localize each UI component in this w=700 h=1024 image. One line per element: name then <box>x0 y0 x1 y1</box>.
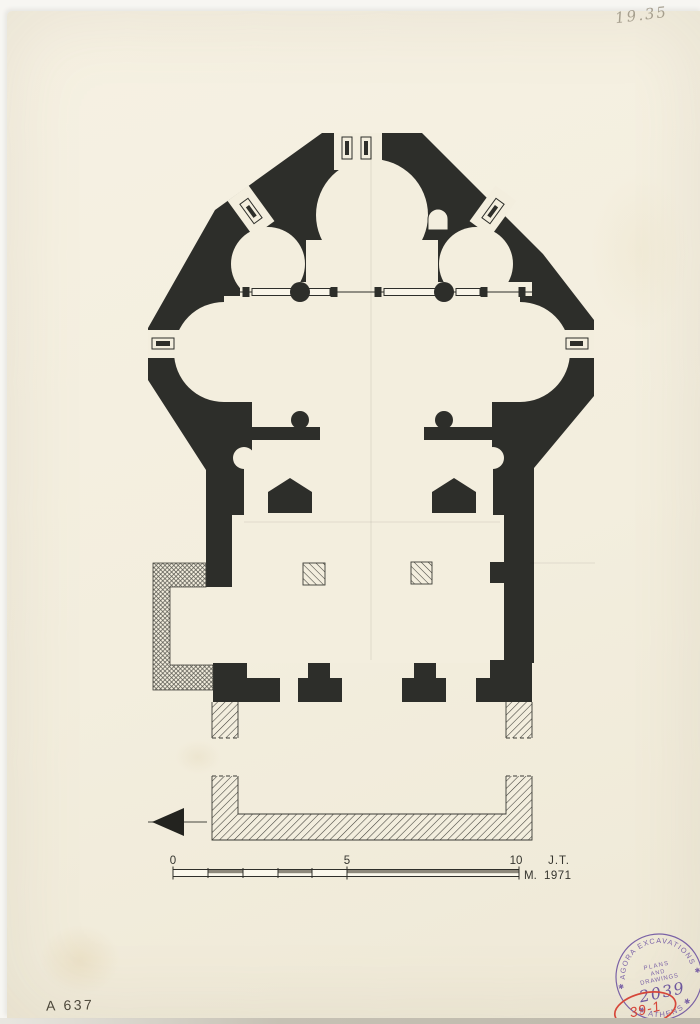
arched-niche <box>428 209 448 230</box>
west-window <box>148 330 196 358</box>
naos-column <box>435 411 453 429</box>
templon-post <box>519 287 526 297</box>
scale-label-10: 10 <box>510 855 523 867</box>
scale-segment-shaded <box>208 870 243 873</box>
catalog-number: A 637 <box>46 996 95 1013</box>
scale-segment-shaded <box>278 870 312 873</box>
narthex-pier-base <box>411 562 432 584</box>
narthex-west-wall <box>213 663 532 702</box>
narthex <box>232 515 504 663</box>
narthex-pier <box>476 663 532 702</box>
drafter-initials: J.T. <box>548 855 570 867</box>
wall-niche-left <box>233 447 255 469</box>
paper-bottom-edge <box>0 1018 700 1024</box>
mullion-bar <box>345 141 349 155</box>
narthex-pier <box>298 663 342 702</box>
scale-label-5: 5 <box>344 855 350 867</box>
naos-column <box>291 411 309 429</box>
wall-niche-right <box>482 447 504 469</box>
templon-column <box>434 282 454 302</box>
templon-column <box>290 282 310 302</box>
red-mark-text: 39-1 <box>628 998 663 1021</box>
templon-slab <box>384 289 436 296</box>
drawing-year: 1971 <box>544 870 572 882</box>
porch-wall-stub <box>212 702 238 738</box>
templon-post <box>481 287 488 297</box>
mullion-bar <box>570 341 583 346</box>
west-cross-arm-wall <box>250 427 320 440</box>
east-window <box>548 330 594 358</box>
apse-window <box>334 133 382 170</box>
mullion-bar <box>364 141 368 155</box>
wall-pilaster <box>490 660 504 678</box>
templon-slab <box>252 289 292 296</box>
wall-pilaster <box>490 562 504 583</box>
porch-wall-u <box>212 776 532 840</box>
scale-segment-shaded <box>347 870 519 873</box>
templon-post <box>331 287 338 297</box>
templon-post <box>243 287 250 297</box>
narthex-pier <box>213 663 280 702</box>
window-opening <box>334 133 382 170</box>
west-cross-arm-wall <box>424 427 492 440</box>
scale-label-0: 0 <box>170 855 176 867</box>
north-arrow <box>148 808 207 836</box>
mullion-bar <box>156 341 170 346</box>
scale-unit: M. <box>524 870 537 882</box>
scanned-drawing-page: { "drawing": { "subject": "church-floor-… <box>0 0 700 1024</box>
templon-slab <box>456 289 480 296</box>
church-floor-plan: 0 5 10 J.T. M. 1971 <box>0 0 700 1024</box>
north-arrow-head <box>152 808 184 836</box>
scale-bar: 0 5 10 J.T. M. 1971 <box>170 855 572 882</box>
templon-post <box>375 287 382 297</box>
annex-room <box>170 587 232 665</box>
scanned-sheet: 0 5 10 J.T. M. 1971 19.35 A 637 AGORA EX… <box>0 0 700 1024</box>
narthex-pier <box>402 663 446 702</box>
stamp-star-right: ✱ <box>694 966 700 975</box>
narthex-pier-base <box>303 563 325 585</box>
porch-wall-stub <box>506 702 532 738</box>
